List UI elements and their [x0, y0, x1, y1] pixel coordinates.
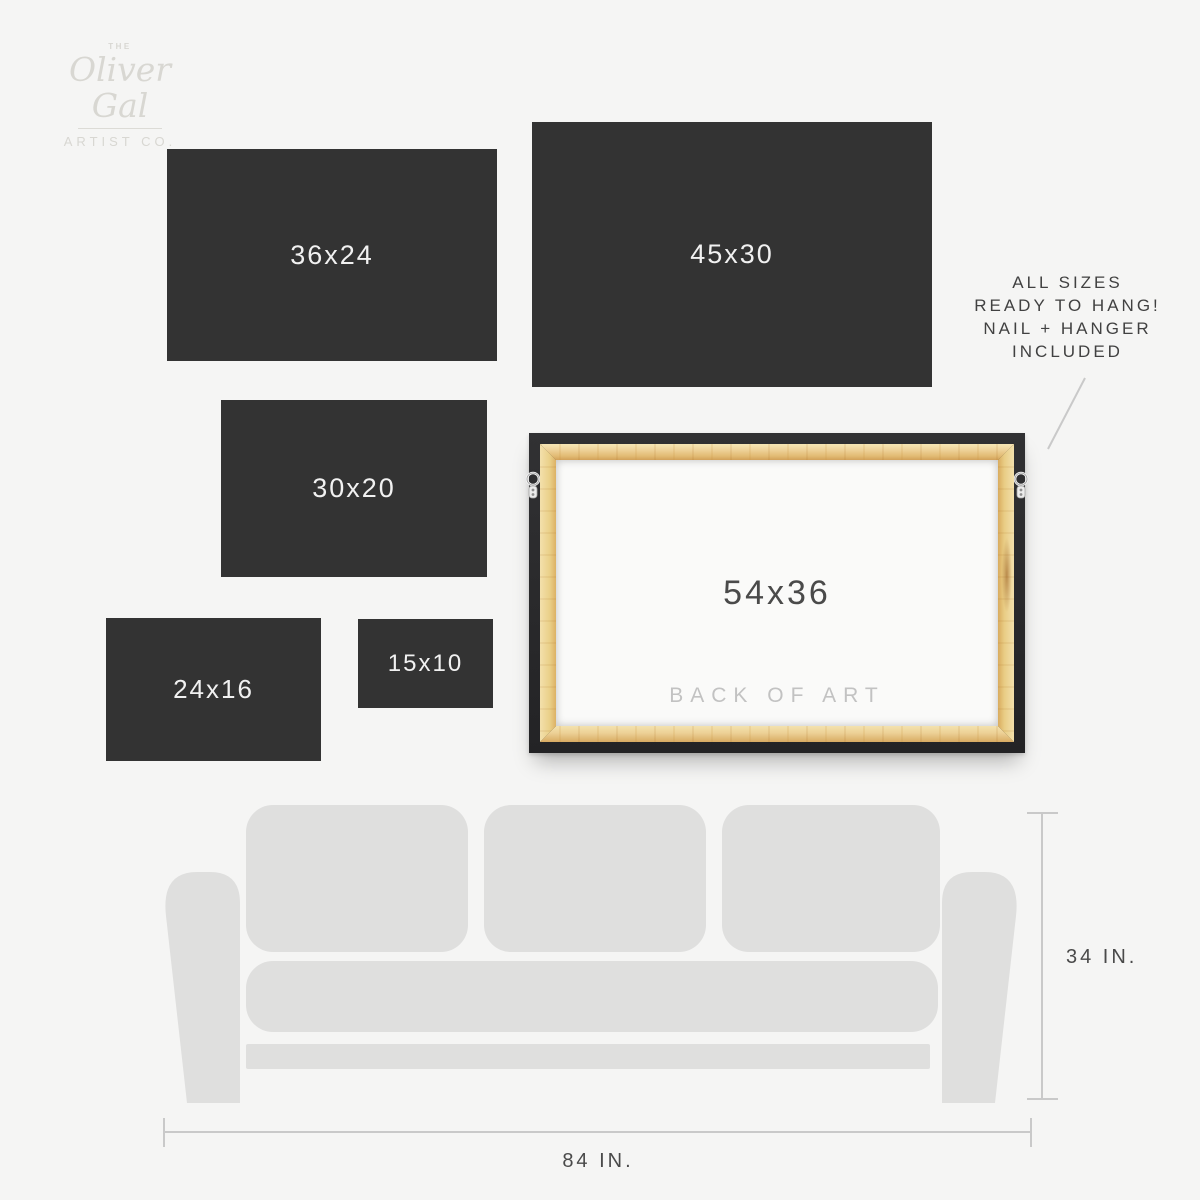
- canvas-back-panel: 54x36 BACK OF ART: [556, 460, 998, 726]
- back-of-art-frame: 54x36 BACK OF ART: [529, 433, 1025, 753]
- ready-to-hang-note: ALL SIZES READY TO HANG! NAIL + HANGER I…: [950, 271, 1185, 363]
- size-label-54x36: 54x36: [723, 574, 831, 613]
- size-tile-45x30: 45x30: [532, 122, 932, 387]
- size-label-36x24: 36x24: [290, 240, 374, 271]
- couch-silhouette: [165, 805, 1016, 1103]
- callout-line-2: READY TO HANG!: [950, 294, 1185, 317]
- couch-back-cushion-1: [246, 805, 468, 952]
- brand-divider: [78, 128, 162, 129]
- callout-line-1: ALL SIZES: [950, 271, 1185, 294]
- brand-logo: THE Oliver Gal ARTIST CO.: [42, 42, 198, 149]
- couch-armrest-right: [942, 872, 1017, 1103]
- stretcher-bar-right: [998, 444, 1014, 742]
- d-ring-hanger-right-icon: [1011, 469, 1031, 505]
- callout-pointer-line: [1048, 378, 1085, 449]
- size-label-15x10: 15x10: [388, 650, 463, 678]
- couch-back-cushion-3: [722, 805, 940, 952]
- stretcher-bar-bottom: [540, 726, 1014, 742]
- couch-seat-cushion: [246, 961, 938, 1032]
- size-tile-24x16: 24x16: [106, 618, 321, 761]
- brand-suffix: ARTIST CO.: [42, 134, 198, 149]
- size-tile-36x24: 36x24: [167, 149, 497, 361]
- size-label-45x30: 45x30: [690, 239, 774, 270]
- couch-width-label: 84 IN.: [537, 1150, 659, 1173]
- size-label-30x20: 30x20: [312, 473, 396, 504]
- couch-armrest-left: [165, 872, 240, 1103]
- couch-height-label: 34 IN.: [1066, 946, 1137, 969]
- callout-line-3: NAIL + HANGER: [950, 317, 1185, 340]
- stretcher-bar-top: [540, 444, 1014, 460]
- back-of-art-caption: BACK OF ART: [556, 684, 998, 708]
- couch-base-rail: [246, 1044, 930, 1069]
- callout-line-4: INCLUDED: [950, 340, 1185, 363]
- size-tile-30x20: 30x20: [221, 400, 487, 577]
- stretcher-bar-left: [540, 444, 556, 742]
- size-tile-15x10: 15x10: [358, 619, 493, 708]
- size-label-24x16: 24x16: [173, 674, 254, 705]
- size-guide-infographic: THE Oliver Gal ARTIST CO. 36x24 45x30 30…: [0, 0, 1200, 1200]
- brand-name: Oliver Gal: [42, 52, 198, 124]
- couch-back-cushion-2: [484, 805, 706, 952]
- canvas-stretcher-bars: 54x36 BACK OF ART: [540, 444, 1014, 742]
